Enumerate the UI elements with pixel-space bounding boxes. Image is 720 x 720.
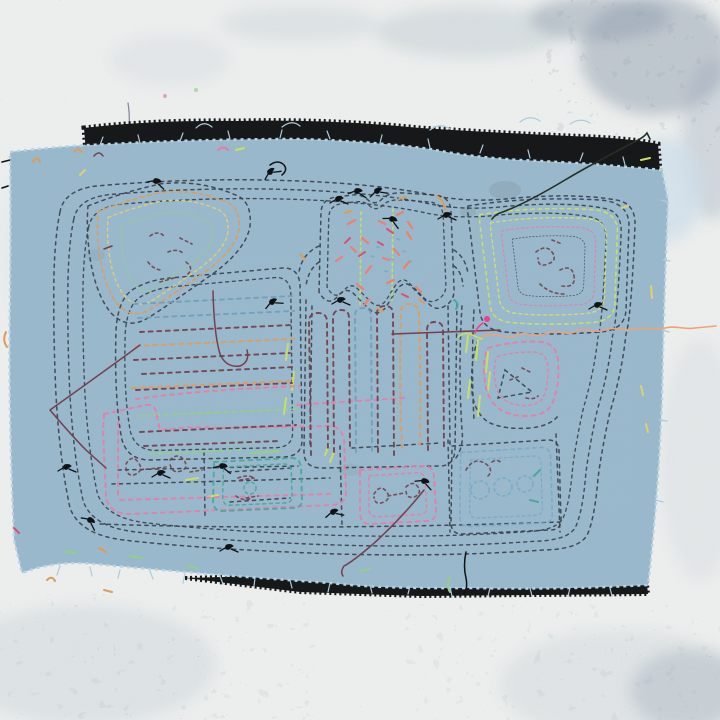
fabric-texture xyxy=(0,130,720,600)
textile-artwork-photo: Photograph of a hand-stitched textile ar… xyxy=(0,0,720,720)
artwork-scene xyxy=(0,0,720,720)
